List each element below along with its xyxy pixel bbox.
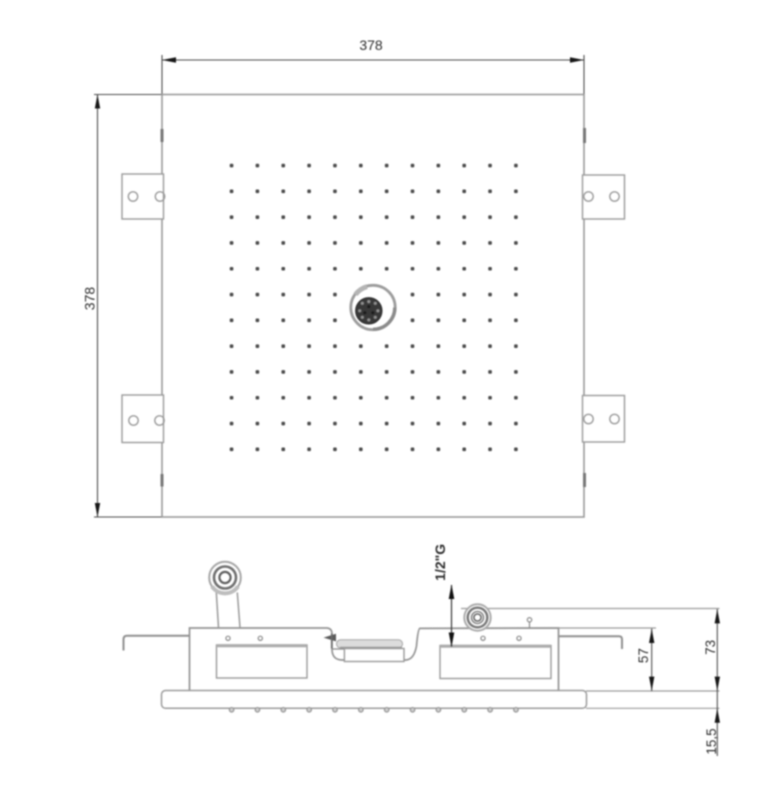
svg-text:378: 378	[82, 287, 98, 311]
svg-text:73: 73	[703, 640, 718, 655]
svg-text:57: 57	[636, 648, 651, 663]
svg-text:1/2"G: 1/2"G	[432, 544, 448, 581]
svg-text:15,5: 15,5	[704, 728, 719, 754]
svg-text:378: 378	[359, 37, 383, 53]
